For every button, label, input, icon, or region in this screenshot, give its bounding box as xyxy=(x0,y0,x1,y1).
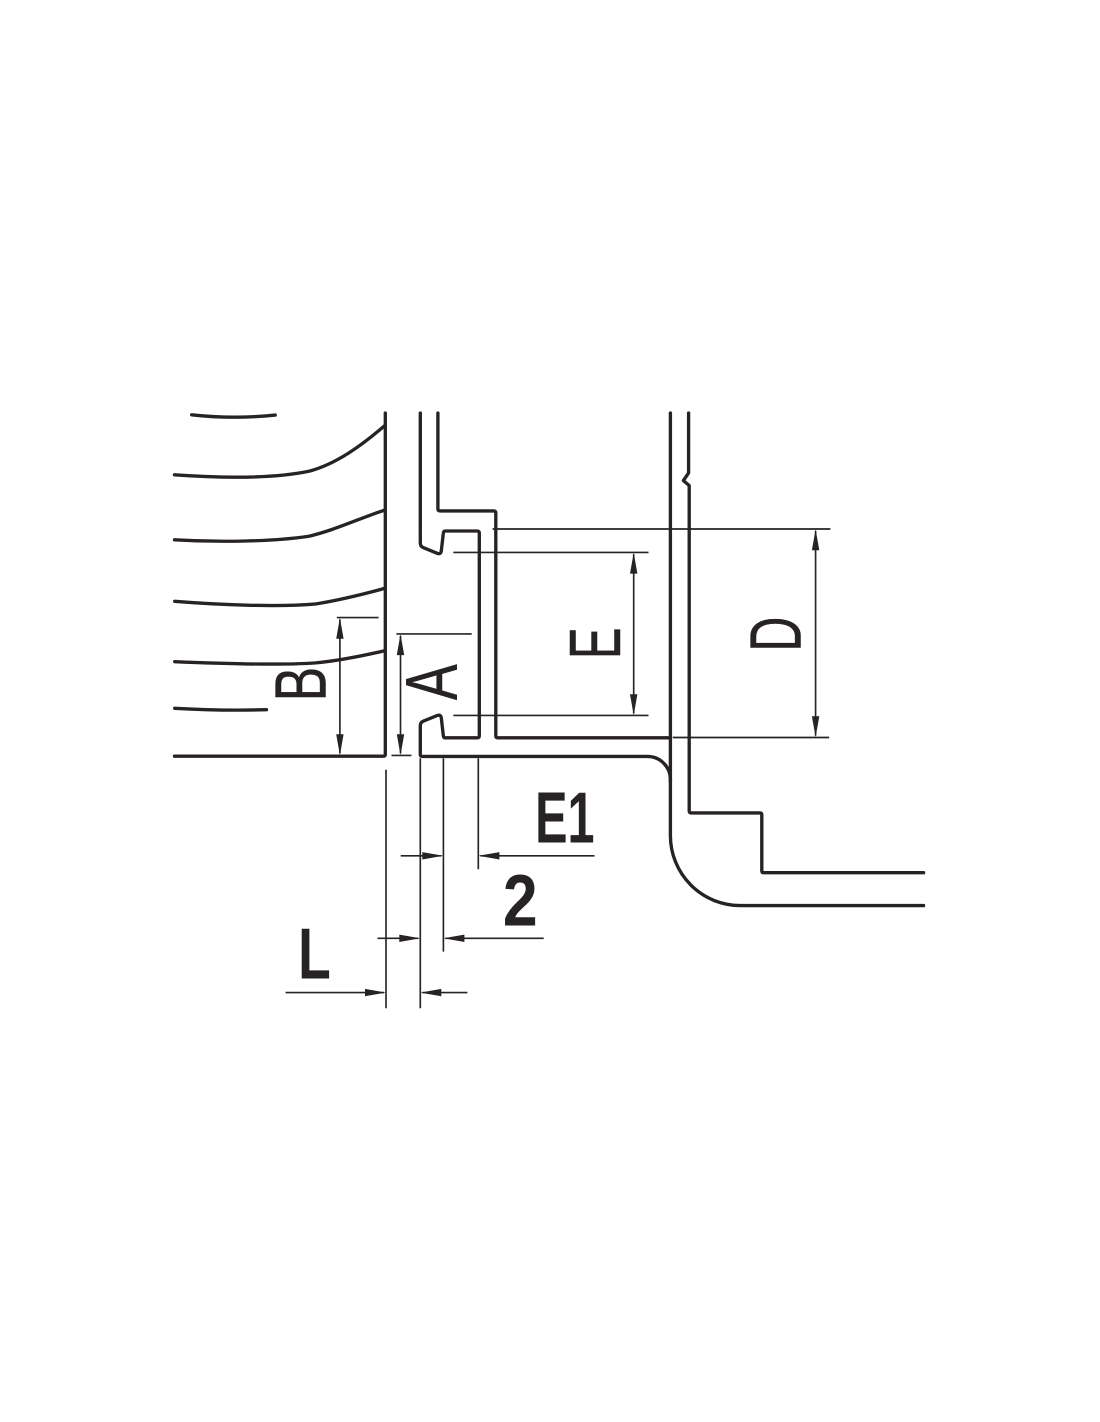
svg-text:L: L xyxy=(298,915,331,995)
svg-text:2: 2 xyxy=(503,860,538,942)
svg-text:D: D xyxy=(736,617,817,652)
svg-text:E1: E1 xyxy=(535,778,594,859)
svg-text:A: A xyxy=(391,664,473,700)
svg-text:E: E xyxy=(555,627,637,659)
svg-text:B: B xyxy=(261,667,342,701)
